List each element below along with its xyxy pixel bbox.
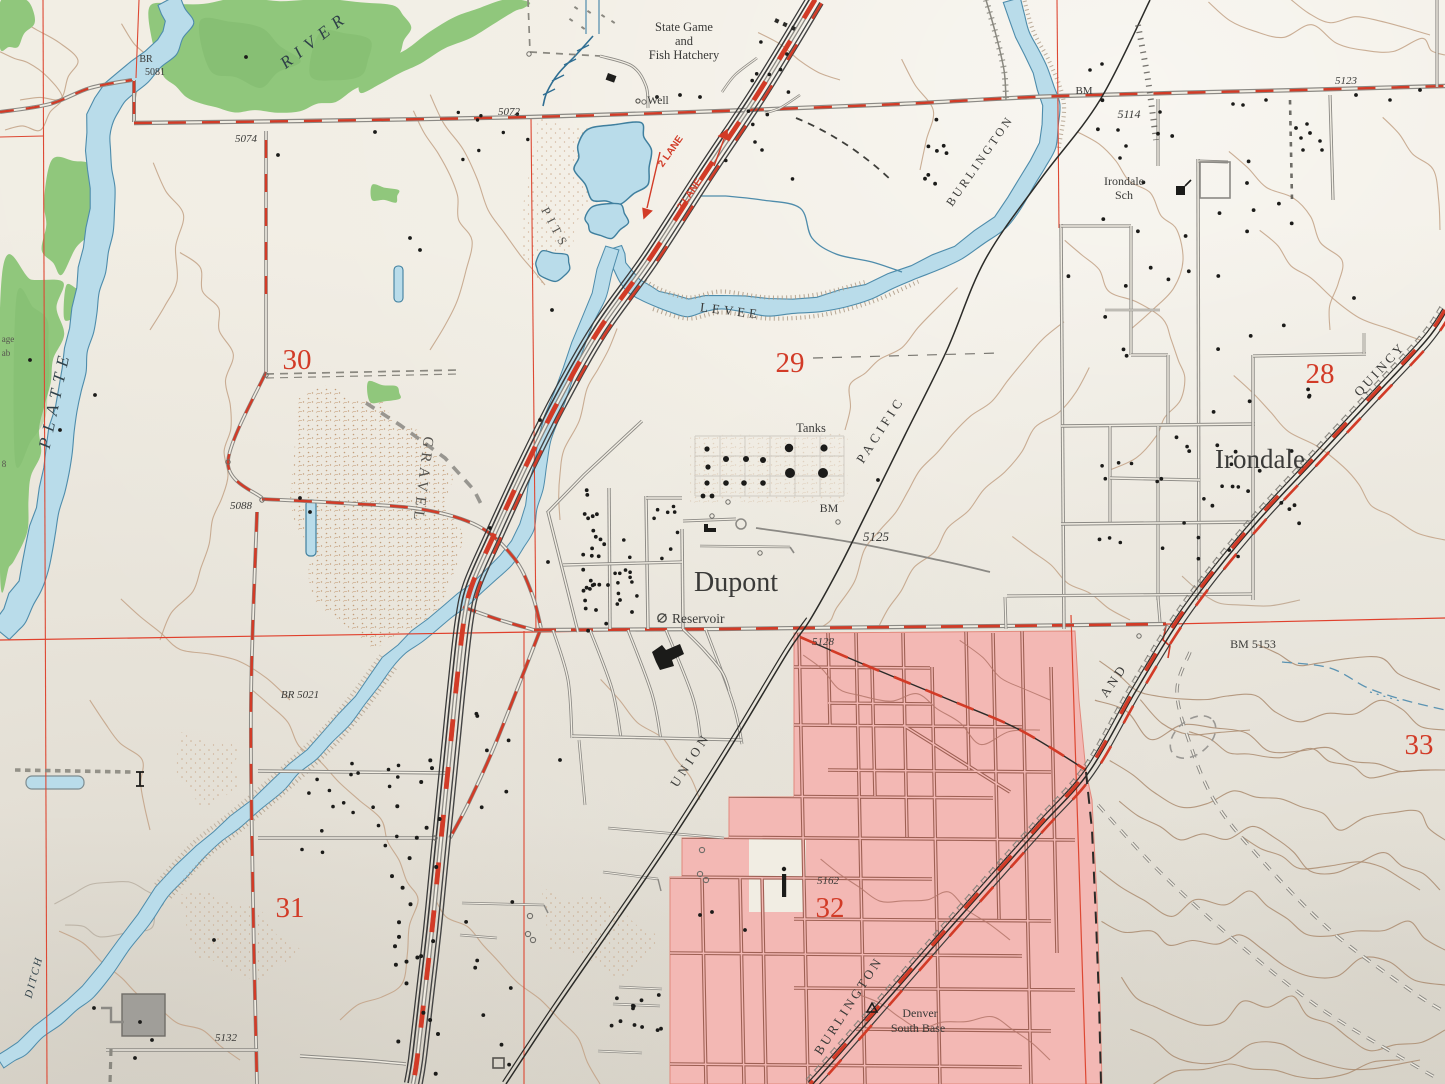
svg-text:5081: 5081 bbox=[145, 67, 165, 78]
svg-text:Dupont: Dupont bbox=[694, 567, 778, 598]
svg-text:Irondale: Irondale bbox=[1104, 174, 1144, 188]
svg-text:ab: ab bbox=[2, 348, 11, 358]
svg-text:Well: Well bbox=[647, 95, 668, 107]
svg-text:BM 5153: BM 5153 bbox=[1230, 637, 1276, 651]
svg-text:5132: 5132 bbox=[215, 1032, 238, 1044]
svg-text:8: 8 bbox=[2, 459, 7, 469]
svg-text:31: 31 bbox=[276, 892, 305, 924]
svg-text:28: 28 bbox=[1306, 358, 1335, 390]
svg-text:and: and bbox=[675, 34, 694, 48]
svg-text:5128: 5128 bbox=[812, 636, 835, 648]
svg-text:5114: 5114 bbox=[1117, 107, 1140, 121]
svg-text:BR 5021: BR 5021 bbox=[281, 689, 319, 701]
svg-text:Tanks: Tanks bbox=[796, 421, 826, 435]
svg-text:State Game: State Game bbox=[655, 20, 713, 34]
svg-text:5088: 5088 bbox=[230, 500, 253, 512]
svg-text:BM: BM bbox=[820, 501, 839, 515]
svg-text:Sch: Sch bbox=[1115, 188, 1133, 202]
svg-text:30: 30 bbox=[283, 344, 312, 376]
svg-text:5123: 5123 bbox=[1335, 75, 1358, 87]
svg-text:5162: 5162 bbox=[817, 875, 840, 887]
svg-text:Irondale: Irondale bbox=[1215, 444, 1305, 474]
svg-text:5074: 5074 bbox=[235, 133, 258, 145]
svg-text:Fish Hatchery: Fish Hatchery bbox=[649, 48, 720, 62]
svg-text:Denver: Denver bbox=[902, 1006, 937, 1020]
svg-text:29: 29 bbox=[776, 347, 805, 379]
svg-text:Reservoir: Reservoir bbox=[672, 611, 725, 626]
svg-text:BR: BR bbox=[139, 54, 153, 65]
svg-text:32: 32 bbox=[816, 892, 845, 924]
svg-text:5072: 5072 bbox=[498, 106, 521, 118]
svg-text:33: 33 bbox=[1405, 729, 1434, 761]
svg-text:South Base: South Base bbox=[891, 1021, 945, 1035]
svg-text:5125: 5125 bbox=[863, 529, 890, 544]
svg-text:age: age bbox=[2, 334, 15, 344]
svg-text:BM: BM bbox=[1075, 85, 1092, 97]
